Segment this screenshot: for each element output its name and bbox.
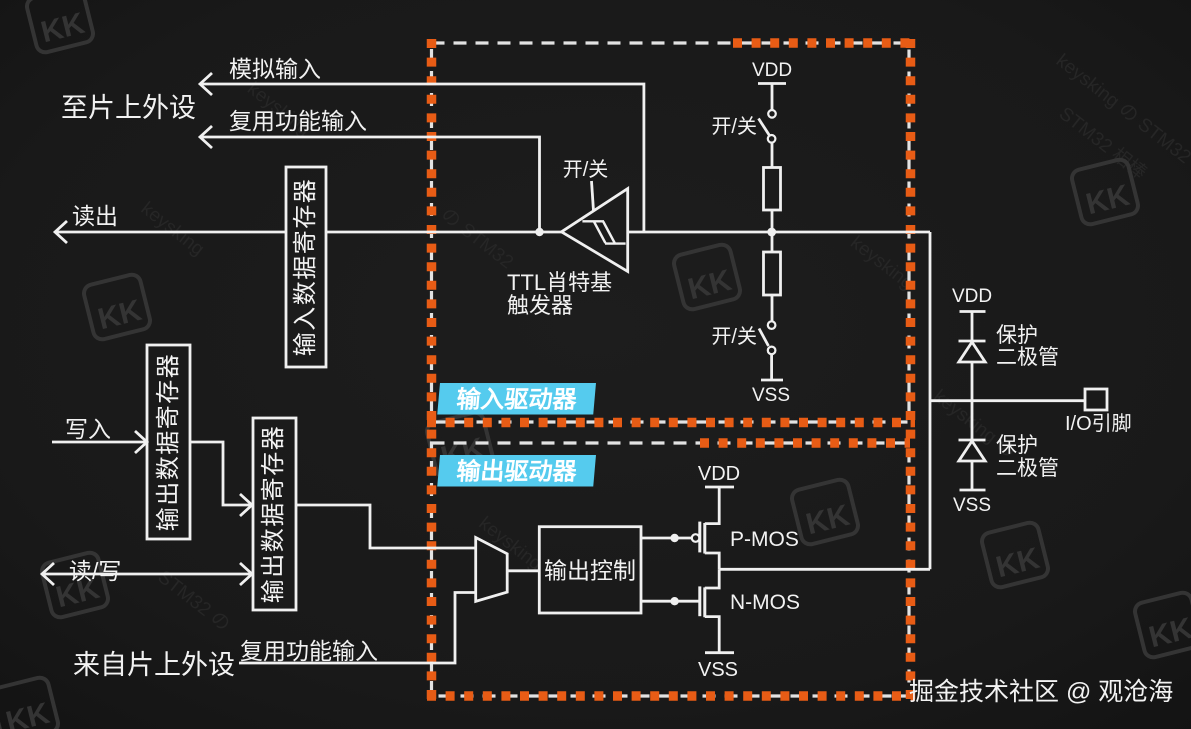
svg-text:输出数据寄存器: 输出数据寄存器 bbox=[260, 425, 287, 604]
svg-text:掘金技术社区 @ 观沧海: 掘金技术社区 @ 观沧海 bbox=[909, 678, 1173, 706]
svg-text:VDD: VDD bbox=[698, 463, 740, 485]
svg-text:VDD: VDD bbox=[952, 286, 992, 307]
svg-text:至片上外设: 至片上外设 bbox=[61, 93, 196, 123]
svg-text:模拟输入: 模拟输入 bbox=[229, 56, 321, 82]
svg-text:二极管: 二极管 bbox=[996, 346, 1059, 369]
svg-text:复用功能输入: 复用功能输入 bbox=[240, 638, 378, 664]
svg-text:来自片上外设: 来自片上外设 bbox=[73, 650, 235, 680]
svg-text:输出驱动器: 输出驱动器 bbox=[455, 458, 578, 486]
svg-text:读/写: 读/写 bbox=[69, 558, 121, 584]
svg-text:开/关: 开/关 bbox=[563, 158, 609, 181]
svg-text:I/O引脚: I/O引脚 bbox=[1065, 412, 1132, 435]
svg-text:开/关: 开/关 bbox=[711, 115, 757, 138]
svg-text:读出: 读出 bbox=[72, 203, 118, 229]
svg-text:N-MOS: N-MOS bbox=[730, 591, 800, 614]
svg-text:保护: 保护 bbox=[996, 324, 1038, 347]
svg-text:开/关: 开/关 bbox=[711, 325, 757, 348]
svg-text:输出数据寄存器: 输出数据寄存器 bbox=[155, 353, 182, 532]
svg-text:输出控制: 输出控制 bbox=[544, 558, 636, 584]
svg-text:输入数据寄存器: 输入数据寄存器 bbox=[292, 178, 319, 357]
svg-text:TTL肖特基: TTL肖特基 bbox=[507, 270, 612, 295]
svg-text:触发器: 触发器 bbox=[507, 293, 573, 318]
svg-text:VSS: VSS bbox=[698, 659, 738, 681]
svg-text:复用功能输入: 复用功能输入 bbox=[229, 108, 367, 134]
svg-text:保护: 保护 bbox=[996, 434, 1038, 457]
svg-text:P-MOS: P-MOS bbox=[730, 528, 799, 551]
svg-text:写入: 写入 bbox=[65, 416, 111, 442]
svg-text:二极管: 二极管 bbox=[996, 457, 1059, 480]
svg-text:VSS: VSS bbox=[752, 385, 790, 406]
svg-text:VDD: VDD bbox=[752, 60, 792, 81]
svg-text:输入驱动器: 输入驱动器 bbox=[455, 386, 578, 414]
svg-text:VSS: VSS bbox=[953, 495, 991, 516]
